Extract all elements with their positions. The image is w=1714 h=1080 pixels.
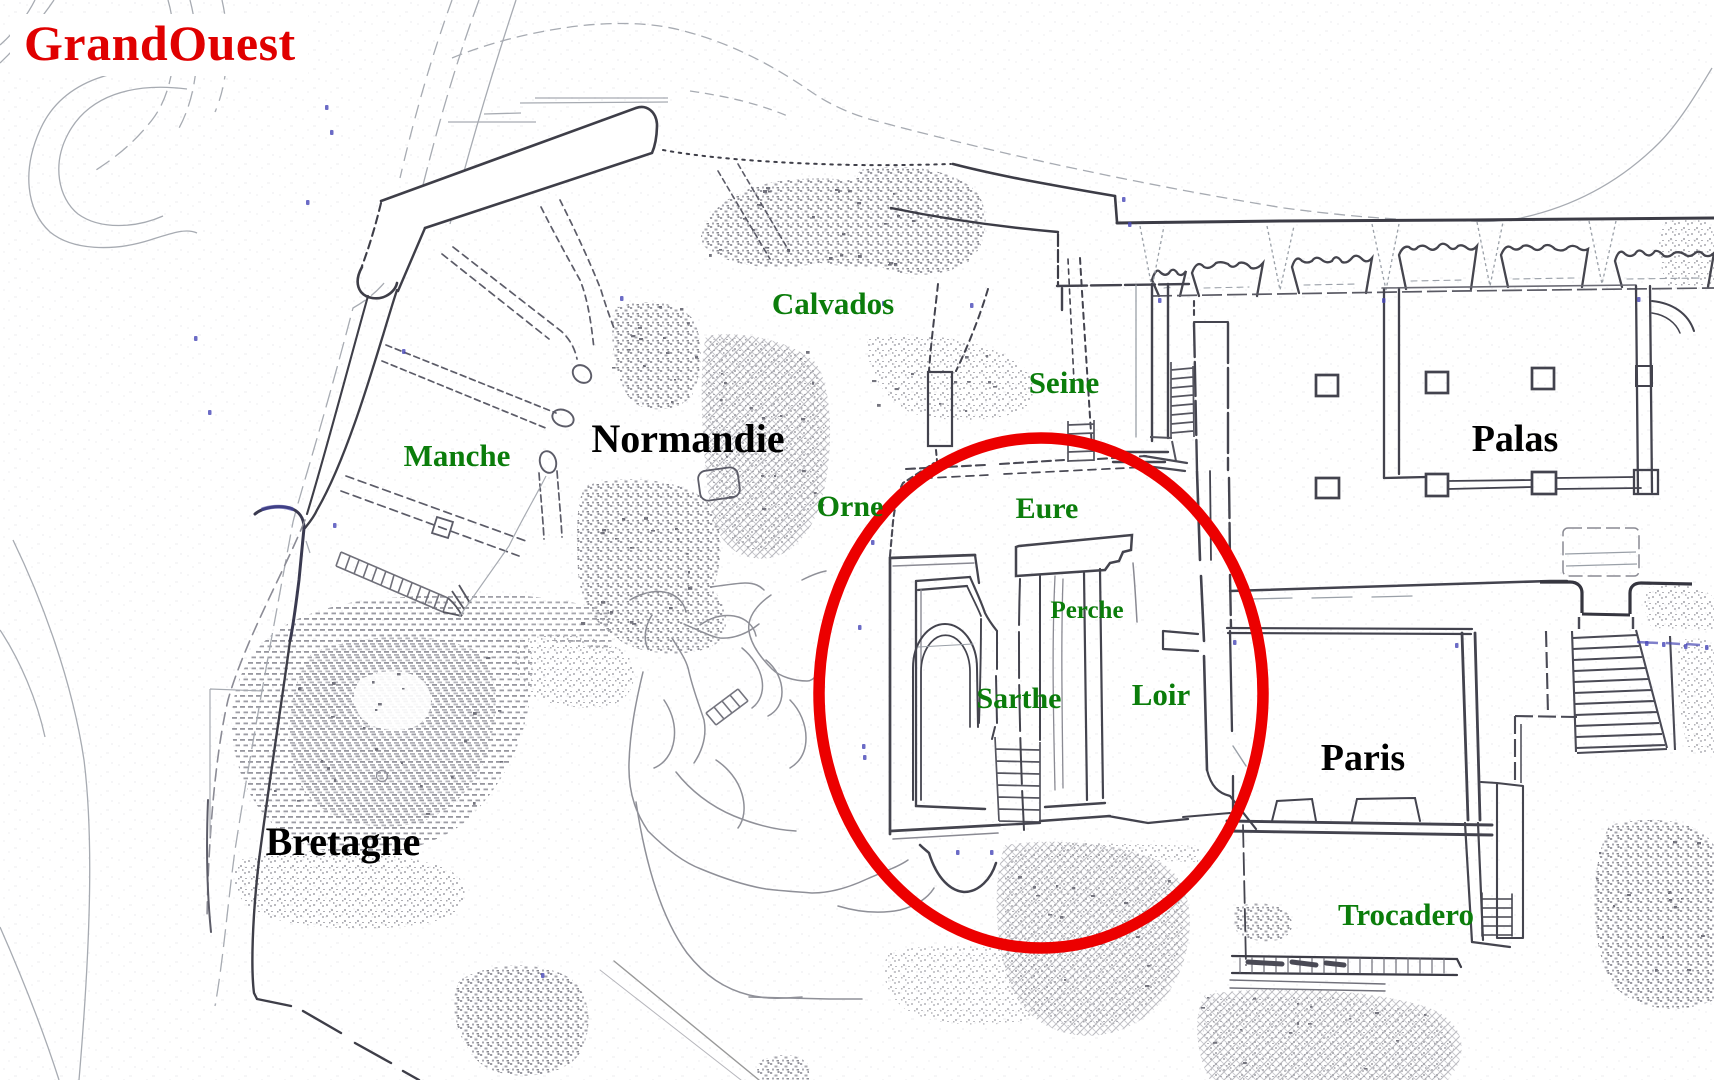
svg-text:Loir: Loir: [1132, 677, 1191, 712]
svg-text:Calvados: Calvados: [772, 286, 894, 321]
svg-text:GrandOuest: GrandOuest: [24, 15, 296, 71]
svg-text:Orne: Orne: [817, 490, 884, 523]
svg-text:Manche: Manche: [404, 438, 511, 473]
svg-text:Bretagne: Bretagne: [266, 819, 421, 864]
svg-text:Perche: Perche: [1050, 597, 1123, 624]
svg-text:Trocadero: Trocadero: [1338, 897, 1474, 932]
svg-text:Palas: Palas: [1472, 418, 1559, 460]
svg-text:Seine: Seine: [1029, 365, 1100, 400]
svg-text:Normandie: Normandie: [591, 416, 784, 461]
svg-text:Eure: Eure: [1016, 492, 1079, 525]
svg-text:Paris: Paris: [1321, 737, 1405, 779]
svg-text:Sarthe: Sarthe: [977, 682, 1062, 715]
